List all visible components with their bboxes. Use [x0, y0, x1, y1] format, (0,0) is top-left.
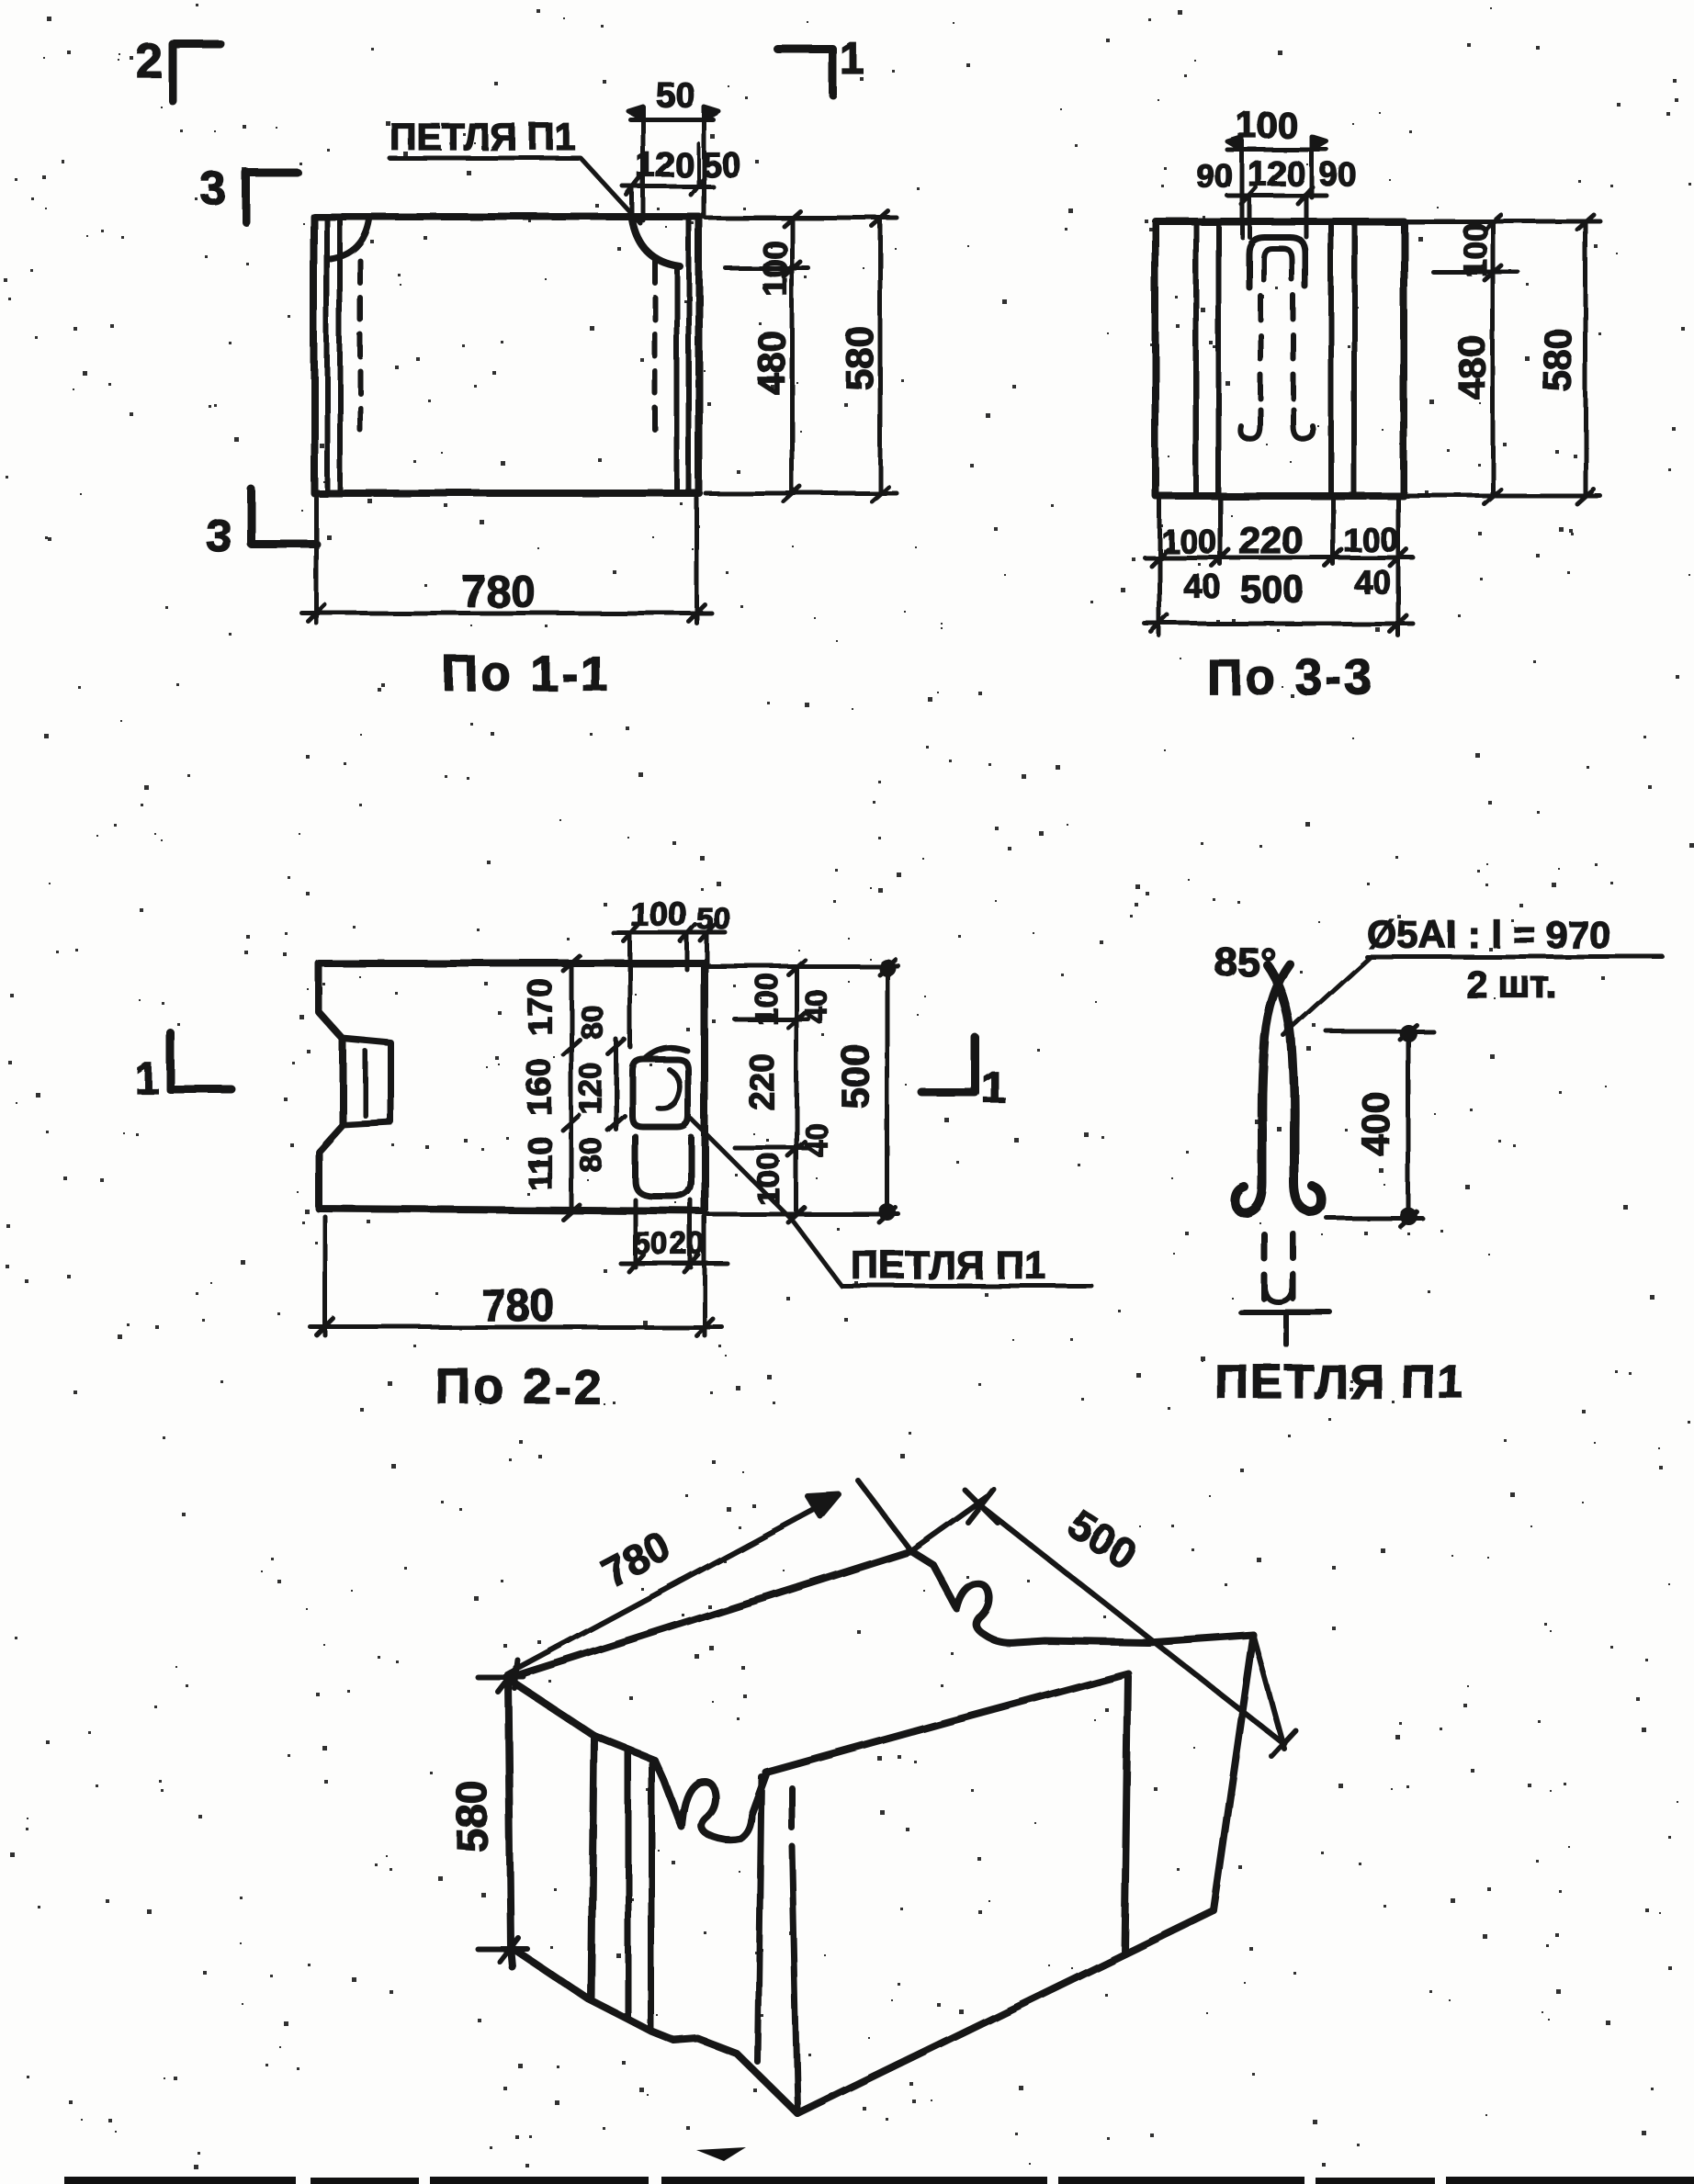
svg-text:ПЕТЛЯ П1: ПЕТЛЯ П1 [851, 1244, 1046, 1288]
svg-text:80: 80 [574, 1138, 609, 1173]
svg-text:100: 100 [751, 1154, 786, 1206]
svg-text:1: 1 [840, 35, 864, 84]
svg-text:500: 500 [1240, 568, 1304, 611]
svg-text:Ø5АI : l = 970: Ø5АI : l = 970 [1367, 913, 1610, 956]
svg-text:90: 90 [1319, 155, 1356, 193]
svg-text:80: 80 [575, 1005, 610, 1040]
svg-text:500: 500 [833, 1044, 876, 1109]
svg-text:ПЕТЛЯ П1: ПЕТЛЯ П1 [390, 116, 576, 158]
svg-text:220: 220 [743, 1053, 781, 1110]
svg-text:100: 100 [1343, 521, 1398, 558]
svg-text:40: 40 [1354, 563, 1391, 601]
svg-text:50: 50 [634, 1227, 669, 1262]
svg-text:3: 3 [206, 510, 232, 561]
svg-text:580: 580 [448, 1782, 496, 1852]
svg-text:По 1-1: По 1-1 [443, 647, 611, 702]
svg-text:2 шт.: 2 шт. [1466, 963, 1557, 1006]
svg-text:120: 120 [574, 1064, 609, 1116]
svg-text:580: 580 [1536, 328, 1579, 392]
svg-text:50: 50 [702, 146, 740, 185]
svg-text:40: 40 [799, 1122, 834, 1157]
svg-text:100: 100 [1456, 222, 1494, 277]
svg-text:160: 160 [520, 1058, 558, 1115]
svg-text:100: 100 [1237, 106, 1298, 146]
svg-text:1: 1 [134, 1054, 159, 1103]
svg-text:120: 120 [636, 146, 694, 185]
svg-text:2: 2 [136, 35, 163, 88]
svg-text:480: 480 [750, 331, 793, 395]
svg-text:3: 3 [200, 163, 226, 214]
svg-text:100: 100 [756, 240, 794, 297]
svg-text:ПЕТЛЯ П1: ПЕТЛЯ П1 [1214, 1356, 1465, 1409]
svg-text:40: 40 [1183, 567, 1220, 604]
svg-text:50: 50 [656, 76, 695, 115]
svg-text:100: 100 [750, 974, 785, 1026]
svg-text:110: 110 [521, 1135, 559, 1190]
svg-text:По 3-3: По 3-3 [1207, 650, 1375, 705]
svg-text:220: 220 [1238, 518, 1303, 561]
svg-text:480: 480 [1450, 335, 1493, 400]
svg-text:780: 780 [481, 1282, 555, 1331]
svg-text:100: 100 [1161, 523, 1216, 560]
svg-text:40: 40 [799, 989, 834, 1024]
svg-text:580: 580 [838, 326, 881, 390]
svg-text:1: 1 [981, 1064, 1006, 1112]
svg-text:170: 170 [521, 978, 559, 1035]
svg-text:780: 780 [461, 568, 535, 616]
svg-text:По 2-2: По 2-2 [435, 1359, 604, 1414]
svg-text:400: 400 [1354, 1092, 1397, 1156]
svg-text:90: 90 [1196, 157, 1233, 195]
